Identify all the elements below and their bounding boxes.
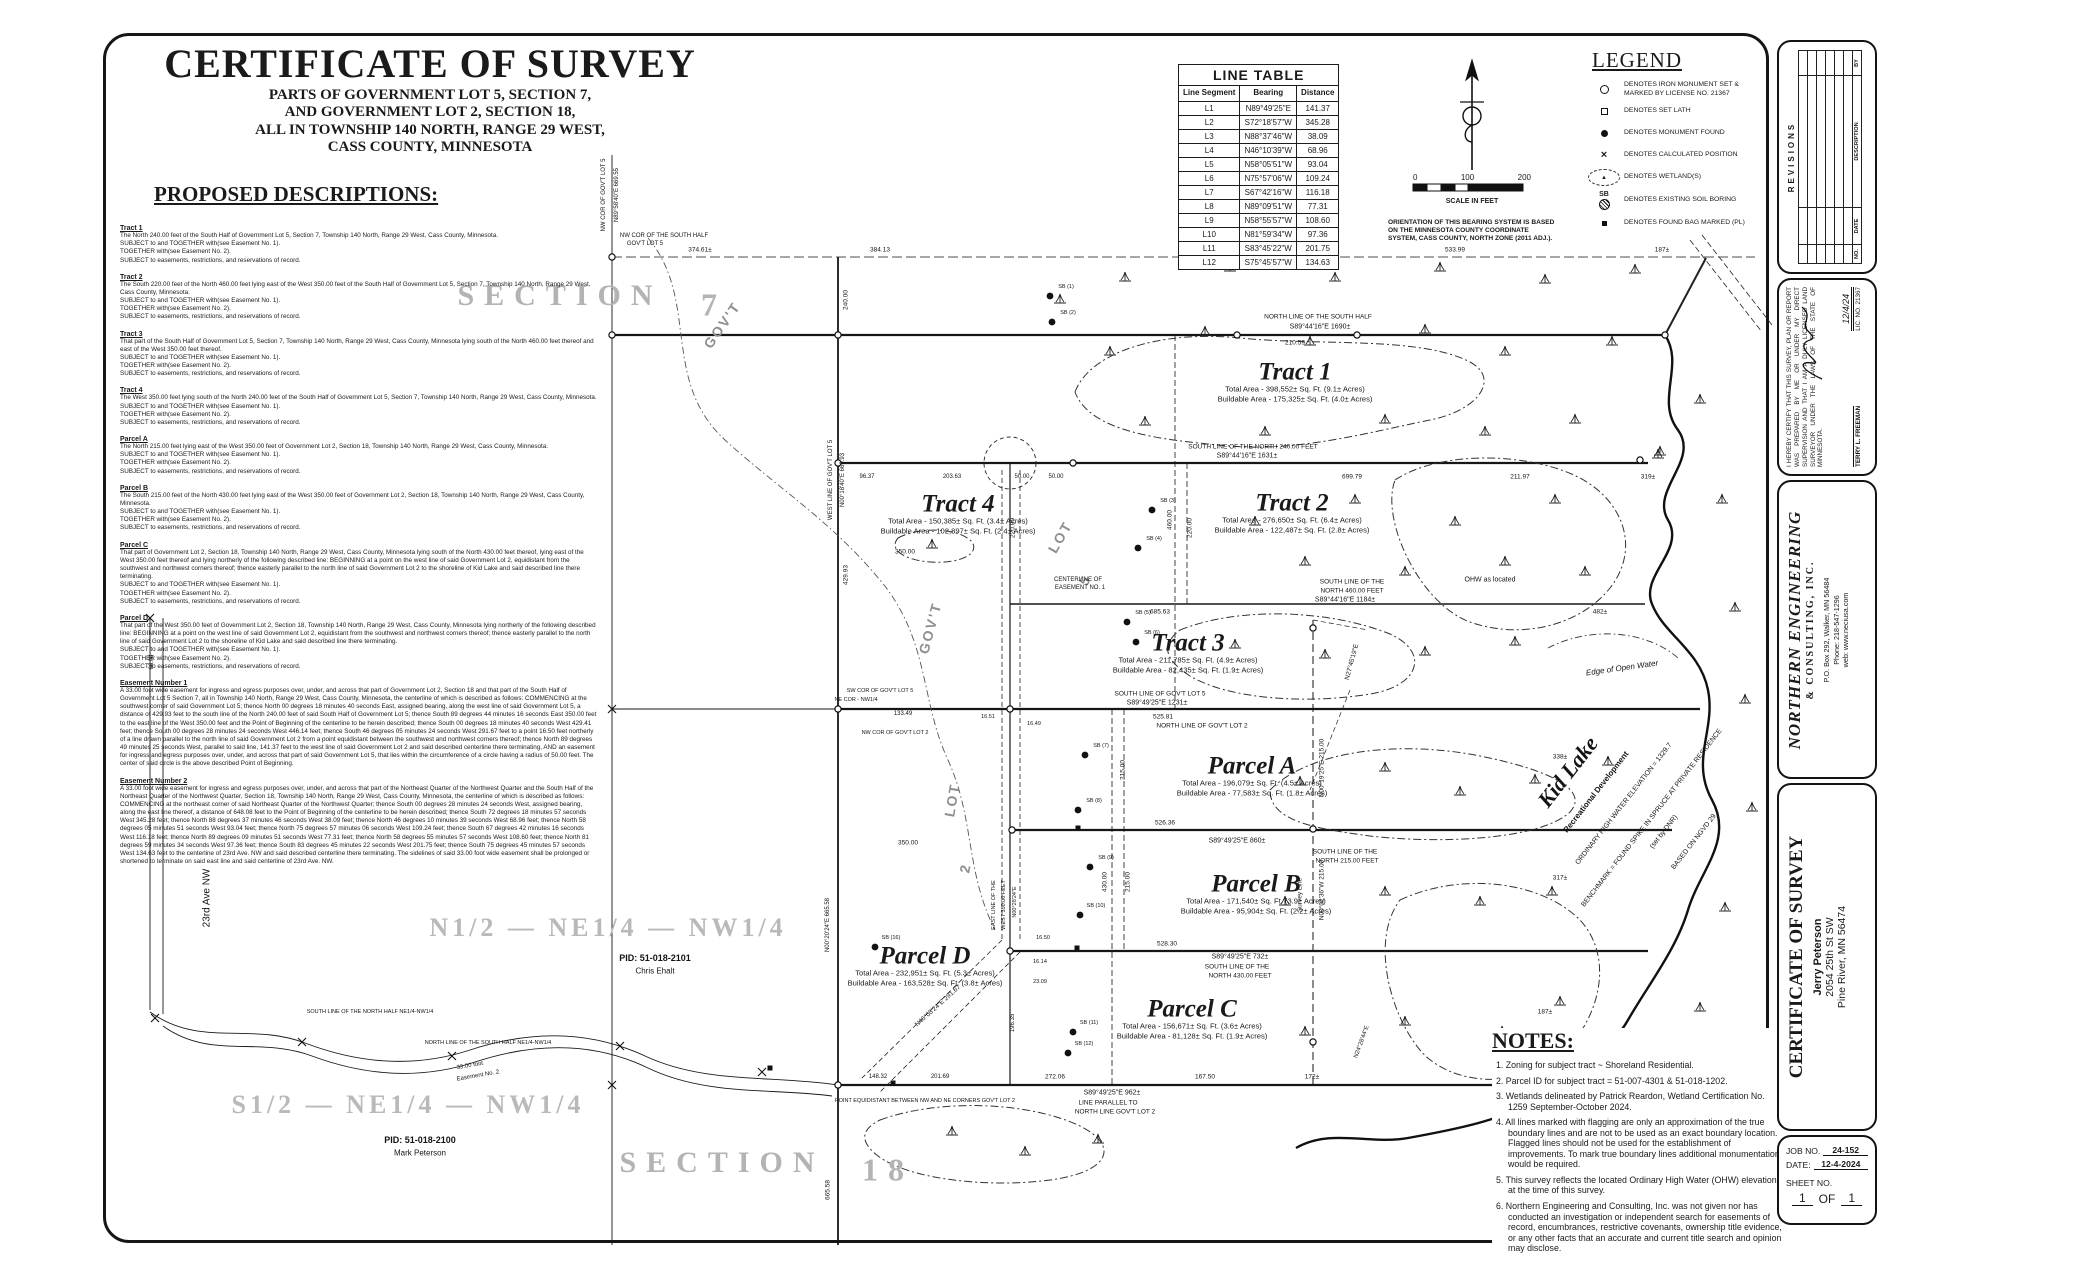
monument-marker [1007,706,1013,712]
scale-caption: SCALE IN FEET [1388,198,1556,205]
subtitle-line: ALL IN TOWNSHIP 140 NORTH, RANGE 29 WEST… [140,122,720,139]
sheet-number: 1 [1792,1191,1813,1206]
x-mark-icon: × [1584,150,1624,161]
legend-item-text: DENOTES EXISTING SOIL BORING [1624,196,1764,204]
description-line: SUBJECT to and TOGETHER with(see Easemen… [120,354,598,362]
license-number: LIC. NO. 21367 [1853,287,1862,331]
table-cell: N89°49'25"E [1240,101,1297,115]
legend: LEGEND DENOTES IRON MONUMENT SET & MARKE… [1584,48,1776,237]
description-heading: Parcel C [120,542,598,549]
table-row: L10N81°59'34"W97.36 [1179,227,1339,241]
description-block: Parcel AThe North 215.00 feet lying east… [120,436,598,476]
table-cell: N58°55'57"W [1240,213,1297,227]
wetland-symbol [1299,1026,1311,1035]
wetland-symbol [1499,556,1511,565]
wetland-symbol [1654,446,1666,455]
revisions-col-no: NO. [1853,245,1862,264]
description-line: A 33.00 foot wide easement for ingress a… [120,785,598,867]
legend-item: ▲DENOTES WETLAND(S) [1584,169,1776,186]
table-row: L3N88°37'46"W38.09 [1179,129,1339,143]
set-lath-icon [1601,108,1608,115]
table-cell: L1 [1179,101,1240,115]
description-line: The South 220.00 feet of the North 460.0… [120,281,598,297]
wetland-symbol [1229,639,1241,648]
note-item: 1. Zoning for subject tract ~ Shoreland … [1508,1060,1784,1071]
legend-item: ×DENOTES CALCULATED POSITION [1584,147,1776,164]
legend-item-text: DENOTES SET LATH [1624,107,1764,115]
table-row: L12S75°45'57"W134.63 [1179,255,1339,269]
wetland-symbol [1434,262,1446,271]
table-cell: S83°45'22"W [1240,241,1297,255]
table-cell: 77.31 [1297,199,1339,213]
wetland-symbol [946,1126,958,1135]
soil-boring-marker [1133,639,1140,646]
description-line: SUBJECT to easements, restrictions, and … [120,257,598,265]
description-heading: Tract 3 [120,331,598,338]
wetland-symbol [1539,274,1551,283]
notes-list: 1. Zoning for subject tract ~ Shoreland … [1492,1060,1784,1254]
calculated-position-marker [298,1038,306,1046]
scale-tick: 0 [1413,173,1417,182]
wetland-symbol [1602,756,1614,765]
table-row: L11S83°45'22"W201.75 [1179,241,1339,255]
description-line: SUBJECT to easements, restrictions, and … [120,598,598,606]
wetland-symbol [1716,494,1728,503]
found-bag-marker [891,1081,896,1086]
wetland-icon: ▲ [1584,169,1624,186]
date-label: DATE: [1786,1160,1811,1170]
monument-marker [1662,332,1668,338]
description-line: That part of the West 350.00 feet of Gov… [120,622,598,647]
table-row: L2S72°18'57"W345.28 [1179,115,1339,129]
wetland-symbol [1606,336,1618,345]
note-item: 4. All lines marked with flagging are on… [1508,1117,1784,1170]
description-blocks: Tract 1The North 240.00 feet of the Sout… [120,225,598,866]
wetland-symbol [1379,886,1391,895]
line-table-col-distance: Distance [1297,86,1339,102]
table-cell: L7 [1179,185,1240,199]
description-line: TOGETHER with(see Easement No. 2). [120,590,598,598]
table-cell: L9 [1179,213,1240,227]
wetland-symbol [1399,1016,1411,1025]
calculated-position-marker [616,1042,624,1050]
description-line: TOGETHER with(see Easement No. 2). [120,459,598,467]
soil-boring-icon: SB [1599,191,1610,210]
note-item: 3. Wetlands delineated by Patrick Reardo… [1508,1091,1784,1112]
circle-filled-icon [1584,130,1624,137]
revisions-col-description: DESCRIPTION [1853,76,1862,208]
table-cell: L10 [1179,227,1240,241]
legend-item: DENOTES IRON MONUMENT SET & MARKED BY LI… [1584,81,1776,98]
sheet-no-label: SHEET NO. [1786,1178,1868,1188]
wetland-symbol [1294,776,1306,785]
sheet-total: 1 [1841,1191,1862,1206]
monument-marker [1009,827,1015,833]
soil-boring-marker [1077,912,1084,919]
description-line: TOGETHER with(see Easement No. 2). [120,305,598,313]
table-cell: N88°37'46"W [1240,129,1297,143]
legend-item: DENOTES FOUND BAG MARKED (PL) [1584,215,1776,232]
wetland-symbol [1739,694,1751,703]
wetland-symbol [1719,902,1731,911]
wetland-symbol [1329,272,1341,281]
table-cell: 109.24 [1297,171,1339,185]
legend-items: DENOTES IRON MONUMENT SET & MARKED BY LI… [1584,81,1776,232]
monument-marker [835,1082,841,1088]
wetland-icon: ▲ [1588,169,1620,186]
revisions-col-date: DATE [1853,208,1862,245]
table-cell: L12 [1179,255,1240,269]
wetland-symbol [1454,786,1466,795]
page-title: CERTIFICATE OF SURVEY [140,40,720,87]
description-heading: Tract 1 [120,225,598,232]
line-table-title: LINE TABLE [1179,65,1339,86]
north-arrow-scale: 0 100 200 SCALE IN FEET ORIENTATION OF T… [1388,58,1556,244]
square-open-icon [1584,108,1624,115]
table-cell: N75°57'06"W [1240,171,1297,185]
job-no-label: JOB NO. [1786,1146,1820,1156]
soil-boring-marker [1075,807,1082,814]
square-filled-icon [1584,221,1624,226]
description-line: The South 215.00 feet of the North 430.0… [120,492,598,508]
calculated-position-marker [758,1068,766,1076]
description-block: Easement Number 2A 33.00 foot wide easem… [120,778,598,867]
monument-found-icon [1601,130,1608,137]
legend-item-text: DENOTES CALCULATED POSITION [1624,151,1764,159]
description-heading: Tract 2 [120,274,598,281]
table-cell: L8 [1179,199,1240,213]
wetland-symbol [1304,336,1316,345]
description-line: A 33.00 foot wide easement for ingress a… [120,687,598,769]
description-block: Tract 1The North 240.00 feet of the Sout… [120,225,598,265]
edge-of-open-water-line [1548,634,1678,658]
description-line: The North 215.00 feet lying east of the … [120,443,598,451]
soil-boring-marker [1087,864,1094,871]
revisions-col-by: BY [1853,51,1862,76]
description-line: SUBJECT to and TOGETHER with(see Easemen… [120,403,598,411]
line-table-col-segment: Line Segment [1179,86,1240,102]
table-cell: 116.18 [1297,185,1339,199]
table-cell: L3 [1179,129,1240,143]
table-row: L9N58°55'57"W108.60 [1179,213,1339,227]
legend-item-text: DENOTES IRON MONUMENT SET & MARKED BY LI… [1624,81,1764,97]
wetland-symbol [1139,416,1151,425]
soil-boring-marker [872,944,879,951]
description-block: Parcel BThe South 215.00 feet of the Nor… [120,485,598,533]
legend-item-text: DENOTES FOUND BAG MARKED (PL) [1624,219,1764,227]
firm-logo-panel: NORTHERN ENGINEERING & CONSULTING, INC. … [1777,480,1877,779]
table-cell: S75°45'57"W [1240,255,1297,269]
table-cell: 93.04 [1297,157,1339,171]
description-line: That part of the South Half of Governmen… [120,338,598,354]
note-item: 6. Northern Engineering and Consulting, … [1508,1201,1784,1254]
description-line: That part of Government Lot 2, Section 1… [120,549,598,582]
circle-open-icon [1584,85,1624,94]
firm-web: web: www.neciusa.com [1841,491,1851,769]
wetland-symbol [1746,802,1758,811]
job-no-value: 24-152 [1823,1145,1868,1156]
wetland-symbol [1499,346,1511,355]
soil-boring-marker [1149,507,1156,514]
easement-lines [862,235,1772,1092]
table-cell: 68.96 [1297,143,1339,157]
wetland-symbol [1349,494,1361,503]
notes-heading: NOTES: [1492,1028,1784,1054]
description-line: SUBJECT to easements, restrictions, and … [120,468,598,476]
description-line: SUBJECT to easements, restrictions, and … [120,663,598,671]
table-row: L4N46°10'39"W68.96 [1179,143,1339,157]
wetland-symbol [1729,602,1741,611]
soil-boring-marker [1070,1029,1077,1036]
soil-boring-marker [1047,293,1054,300]
wetland-symbol [1379,414,1391,423]
description-block: Tract 4The West 350.00 feet lying south … [120,387,598,427]
north-arrow-icon [1392,58,1552,176]
line-table: LINE TABLE Line Segment Bearing Distance… [1178,64,1339,270]
description-line: SUBJECT to and TOGETHER with(see Easemen… [120,646,598,654]
certification-panel: I HEREBY CERTIFY THAT THIS SURVEY, PLAN … [1777,278,1877,476]
description-heading: Easement Number 1 [120,680,598,687]
table-row: L8N89°09'51"W77.31 [1179,199,1339,213]
table-cell: S67°42'16"W [1240,185,1297,199]
soil-boring-marker [1082,752,1089,759]
legend-item: DENOTES SET LATH [1584,103,1776,120]
wetland-symbol [1299,556,1311,565]
client-address-2: Pine River, MN 56474 [1836,792,1848,1122]
legend-item-text: DENOTES WETLAND(S) [1624,173,1764,181]
description-block: Parcel DThat part of the West 350.00 fee… [120,615,598,671]
calculated-position-icon: × [1601,150,1607,161]
table-row: L6N75°57'06"W109.24 [1179,171,1339,185]
description-line: The North 240.00 feet of the South Half … [120,232,598,240]
description-line: SUBJECT to and TOGETHER with(see Easemen… [120,508,598,516]
soil-boring-marker [1124,619,1131,626]
table-cell: N58°05'51"W [1240,157,1297,171]
wetland-symbol [1554,996,1566,1005]
survey-scan-page: NW COR OF GOV'T LOT 5N89°58'40"E 669.55N… [0,0,2080,1263]
table-row: L7S67°42'16"W116.18 [1179,185,1339,199]
table-cell: L11 [1179,241,1240,255]
wetland-symbol [926,539,938,548]
note-item: 2. Parcel ID for subject tract = 51-007-… [1508,1076,1784,1087]
orientation-note: ORIENTATION OF THIS BEARING SYSTEM IS BA… [1388,219,1556,244]
monument-marker [835,460,841,466]
scale-bar [1412,182,1532,194]
notes-panel: NOTES: 1. Zoning for subject tract ~ Sho… [1492,1028,1784,1259]
line-table-col-bearing: Bearing [1240,86,1297,102]
description-line: SUBJECT to easements, restrictions, and … [120,313,598,321]
description-heading: Tract 4 [120,387,598,394]
wetland-symbol [1379,762,1391,771]
found-bag-icon [1602,221,1607,226]
of-label: OF [1819,1192,1836,1206]
client-panel: CERTIFICATE OF SURVEY Jerry Peterson 205… [1777,783,1877,1131]
soil-boring-icon: SB [1584,191,1624,210]
monument-marker [609,254,615,260]
scale-tick: 100 [1461,173,1474,182]
wetland-symbol [1054,294,1066,303]
wetland-symbol [1199,326,1211,335]
description-line: TOGETHER with(see Easement No. 2). [120,516,598,524]
wetland-symbol [1579,566,1591,575]
monument-marker [1234,332,1240,338]
monument-marker [1007,948,1013,954]
legend-item: SBDENOTES EXISTING SOIL BORING [1584,191,1776,210]
subtitle-line: CASS COUNTY, MINNESOTA [140,139,720,156]
descriptions-heading: PROPOSED DESCRIPTIONS: [154,182,598,207]
revisions-panel: REVISIONS NO. DATE DESCRIPTION BY [1777,40,1877,274]
title-block: CERTIFICATE OF SURVEY PARTS OF GOVERNMEN… [140,40,720,156]
description-heading: Easement Number 2 [120,778,598,785]
soil-boring-circle [1599,199,1610,210]
wetland-symbol [1529,774,1541,783]
description-line: SUBJECT to and TOGETHER with(see Easemen… [120,240,598,248]
found-bag-marker [1075,946,1080,951]
monument-marker [1354,332,1360,338]
signature-date: 12/4/24 [1841,287,1852,331]
description-heading: Parcel D [120,615,598,622]
firm-name: NORTHERN ENGINEERING [1786,491,1803,769]
description-line: SUBJECT to easements, restrictions, and … [120,524,598,532]
date-value: 12-4-2024 [1814,1159,1868,1170]
monument-marker [1070,460,1076,466]
description-line: SUBJECT to easements, restrictions, and … [120,370,598,378]
kid-lake-shoreline [1296,335,1719,1148]
table-row: L1N89°49'25"E141.37 [1179,101,1339,115]
surveyor-name: TERRY L. FREEMAN [1853,406,1862,467]
monument-marker [1310,826,1316,832]
description-block: Tract 2The South 220.00 feet of the Nort… [120,274,598,322]
table-cell: L4 [1179,143,1240,157]
table-cell: 97.36 [1297,227,1339,241]
table-cell: L6 [1179,171,1240,185]
monument-marker [609,332,615,338]
monument-marker [1310,1039,1316,1045]
description-heading: Parcel A [120,436,598,443]
description-block: Tract 3That part of the South Half of Go… [120,331,598,379]
table-cell: 345.28 [1297,115,1339,129]
wetland-symbol [1399,566,1411,575]
wetland-symbol [1694,1002,1706,1011]
table-row: L5N58°05'51"W93.04 [1179,157,1339,171]
description-block: Parcel CThat part of Government Lot 2, S… [120,542,598,606]
wetland-symbol [1092,1134,1104,1143]
wetland-symbol [1259,426,1271,435]
wetland-symbol [1629,264,1641,273]
description-line: TOGETHER with(see Easement No. 2). [120,655,598,663]
table-cell: N81°59'34"W [1240,227,1297,241]
wetland-symbol [1474,896,1486,905]
firm-address: P.O. Box 292, Walker, MN 56484 [1822,491,1832,769]
legend-item-text: DENOTES MONUMENT FOUND [1624,129,1764,137]
wetland-symbol [1249,516,1261,525]
wetland-symbol [1546,886,1558,895]
table-cell: S72°18'57"W [1240,115,1297,129]
wetland-symbol [1549,494,1561,503]
table-cell: L5 [1179,157,1240,171]
soil-boring-marker [1065,1050,1072,1057]
wetland-symbol [1279,896,1291,905]
description-block: Easement Number 1A 33.00 foot wide easem… [120,680,598,769]
soil-boring-marker [1135,545,1142,552]
subtitle-line: AND GOVERNMENT LOT 2, SECTION 18, [140,104,720,121]
client-address-1: 2054 25th St SW [1824,792,1836,1122]
scale-tick: 200 [1518,173,1531,182]
description-line: The West 350.00 feet lying south of the … [120,394,598,402]
wetland-symbol [1419,646,1431,655]
found-bag-marker [768,1066,773,1071]
wetland-symbol [1509,636,1521,645]
table-cell: 141.37 [1297,101,1339,115]
table-cell: N46°10'39"W [1240,143,1297,157]
table-cell: N89°09'51"W [1240,199,1297,213]
description-line: SUBJECT to easements, restrictions, and … [120,419,598,427]
description-line: TOGETHER with(see Easement No. 2). [120,248,598,256]
firm-name-2: & CONSULTING, INC. [1805,491,1816,769]
legend-title: LEGEND [1592,48,1776,73]
table-cell: 134.63 [1297,255,1339,269]
wetland-symbol [1319,649,1331,658]
revisions-table: NO. DATE DESCRIPTION BY [1798,50,1862,264]
monument-marker [1310,625,1316,631]
wetland-symbol [1569,414,1581,423]
table-cell: 201.75 [1297,241,1339,255]
found-bag-marker [1076,826,1081,831]
monument-marker [1637,457,1643,463]
description-line: TOGETHER with(see Easement No. 2). [120,362,598,370]
wetland-symbol [1419,324,1431,333]
description-line: TOGETHER with(see Easement No. 2). [120,411,598,419]
monument-marker [835,332,841,338]
description-line: SUBJECT to and TOGETHER with(see Easemen… [120,581,598,589]
description-line: SUBJECT to and TOGETHER with(see Easemen… [120,451,598,459]
legend-item: DENOTES MONUMENT FOUND [1584,125,1776,142]
signature-icon [1794,303,1828,383]
wetland-symbol [1019,1146,1031,1155]
firm-phone: Phone: 218-547-1296 [1832,491,1842,769]
wetland-symbol [1119,272,1131,281]
client-panel-title: CERTIFICATE OF SURVEY [1786,792,1808,1122]
wetland-symbol [1694,394,1706,403]
revisions-title: REVISIONS [1787,50,1796,264]
soil-boring-marker [1049,319,1056,326]
job-info-panel: JOB NO.24-152 DATE:12-4-2024 SHEET NO. 1… [1777,1135,1877,1225]
wetland-symbol [1479,426,1491,435]
table-cell: L2 [1179,115,1240,129]
iron-monument-icon [1600,85,1609,94]
table-cell: 108.60 [1297,213,1339,227]
wetland-symbol [1104,346,1116,355]
creek-meander-line [648,238,995,930]
description-line: SUBJECT to and TOGETHER with(see Easemen… [120,297,598,305]
client-name: Jerry Peterson [1812,792,1824,1122]
description-heading: Parcel B [120,485,598,492]
wetland-symbol [1449,516,1461,525]
table-cell: 38.09 [1297,129,1339,143]
monument-marker [835,706,841,712]
note-item: 5. This survey reflects the located Ordi… [1508,1175,1784,1196]
subtitle-line: PARTS OF GOVERNMENT LOT 5, SECTION 7, [140,87,720,104]
proposed-descriptions: PROPOSED DESCRIPTIONS: Tract 1The North … [120,182,598,875]
